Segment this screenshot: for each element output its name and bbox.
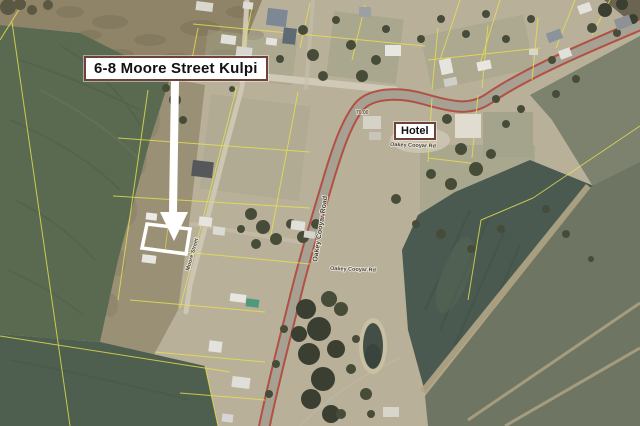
aerial-map: Oakey Cooyar Road Oakey Cooyar Rd Oakey … xyxy=(0,0,640,426)
hotel-label: Hotel xyxy=(394,122,436,140)
road-label-oakey-cooyar-rd-east: Oakey Cooyar Rd xyxy=(390,142,436,150)
road-label-oakey-cooyar-rd-south: Oakey Cooyar Rd xyxy=(330,266,376,274)
spot-height-label: 70.00 xyxy=(356,110,369,116)
property-callout-label: 6-8 Moore Street Kulpi xyxy=(84,56,268,81)
farm-dam xyxy=(359,318,387,374)
